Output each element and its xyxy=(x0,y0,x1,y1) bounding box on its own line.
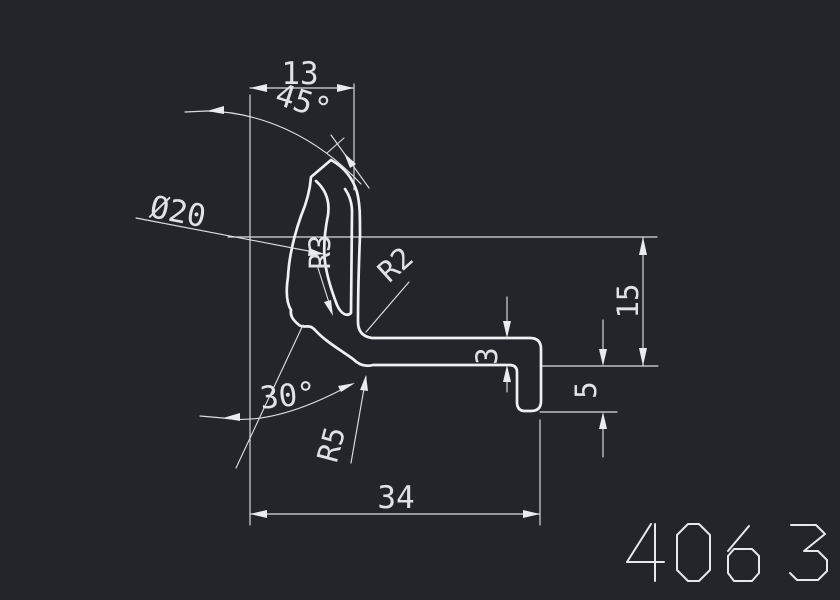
dim-3-label: 3 xyxy=(470,347,504,364)
dim-34-label: 34 xyxy=(377,480,414,516)
cad-drawing-stage: 4063 13 45° Ø20 xyxy=(0,0,840,600)
r3-label: R3 xyxy=(303,235,337,270)
drawing-background xyxy=(0,0,840,600)
dim-15-label: 15 xyxy=(611,284,645,319)
dim-30deg-label: 30° xyxy=(258,375,317,417)
cad-drawing: 13 45° Ø20 R3 R2 3 15 xyxy=(0,0,840,600)
dim-5-label: 5 xyxy=(569,381,603,398)
